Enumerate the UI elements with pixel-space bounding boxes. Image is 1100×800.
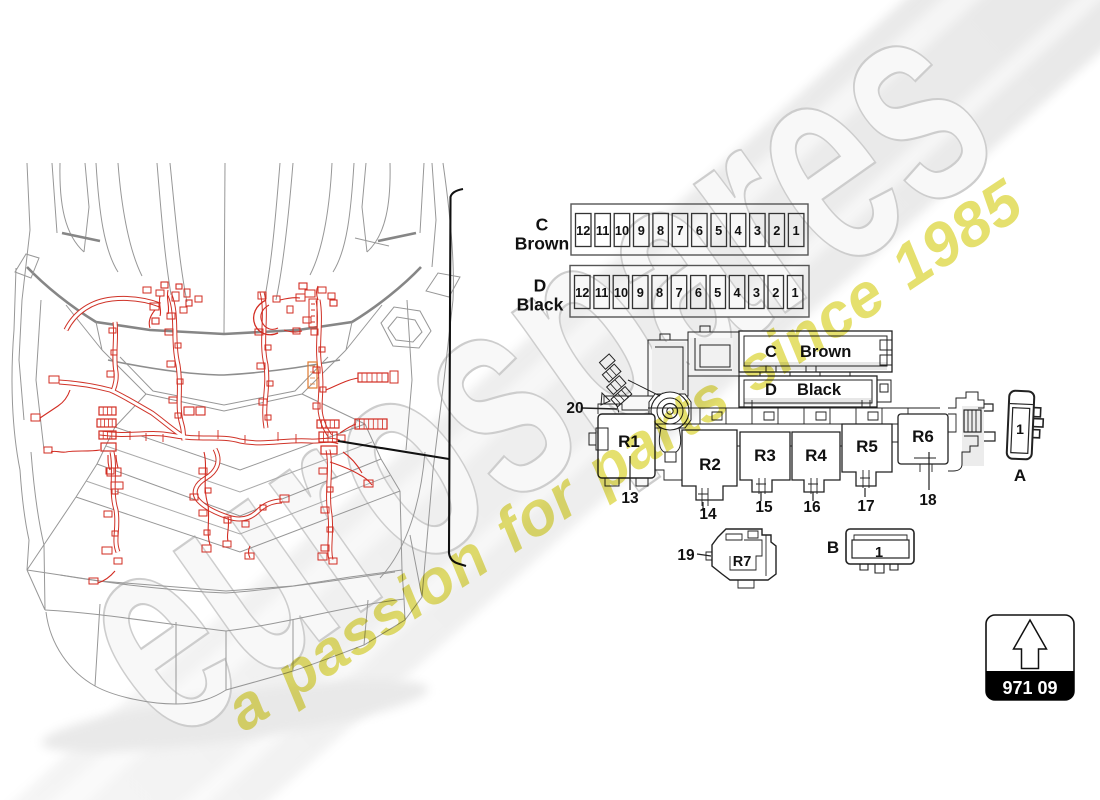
svg-text:17: 17 xyxy=(857,498,874,515)
svg-text:3: 3 xyxy=(754,223,761,238)
svg-text:10: 10 xyxy=(614,285,628,300)
svg-text:12: 12 xyxy=(575,285,589,300)
svg-text:9: 9 xyxy=(637,285,644,300)
svg-text:C: C xyxy=(536,215,549,235)
svg-text:D: D xyxy=(534,276,547,296)
svg-text:1: 1 xyxy=(793,223,800,238)
svg-text:4: 4 xyxy=(733,285,741,300)
svg-text:19: 19 xyxy=(677,547,695,564)
svg-text:11: 11 xyxy=(596,223,610,238)
svg-text:R7: R7 xyxy=(733,554,752,570)
svg-text:9: 9 xyxy=(638,223,645,238)
svg-text:6: 6 xyxy=(695,285,702,300)
svg-text:Black: Black xyxy=(797,381,842,399)
svg-text:1: 1 xyxy=(875,545,883,561)
svg-text:11: 11 xyxy=(595,285,609,300)
svg-text:5: 5 xyxy=(714,285,721,300)
svg-text:Brown: Brown xyxy=(515,234,569,254)
svg-text:1: 1 xyxy=(792,285,799,300)
svg-text:7: 7 xyxy=(676,223,683,238)
svg-text:5: 5 xyxy=(715,223,722,238)
svg-text:16: 16 xyxy=(803,499,821,516)
svg-text:7: 7 xyxy=(675,285,682,300)
svg-text:2: 2 xyxy=(772,285,779,300)
svg-text:A: A xyxy=(1014,466,1026,485)
svg-text:8: 8 xyxy=(657,223,664,238)
svg-text:10: 10 xyxy=(615,223,629,238)
svg-text:R2: R2 xyxy=(699,455,721,474)
svg-text:8: 8 xyxy=(656,285,663,300)
svg-text:R6: R6 xyxy=(912,427,934,446)
svg-text:18: 18 xyxy=(919,492,937,509)
svg-text:R3: R3 xyxy=(754,446,776,465)
svg-text:2: 2 xyxy=(773,223,780,238)
svg-text:R5: R5 xyxy=(856,437,878,456)
svg-text:12: 12 xyxy=(576,223,590,238)
svg-text:1: 1 xyxy=(1016,421,1024,437)
svg-text:971 09: 971 09 xyxy=(1002,678,1057,698)
svg-text:B: B xyxy=(827,538,839,557)
svg-text:20: 20 xyxy=(566,400,583,417)
svg-text:6: 6 xyxy=(696,223,703,238)
svg-text:4: 4 xyxy=(734,223,742,238)
svg-text:R4: R4 xyxy=(805,446,827,465)
svg-text:15: 15 xyxy=(755,499,773,516)
svg-text:Black: Black xyxy=(517,295,564,315)
svg-text:3: 3 xyxy=(753,285,760,300)
svg-text:14: 14 xyxy=(699,506,717,523)
